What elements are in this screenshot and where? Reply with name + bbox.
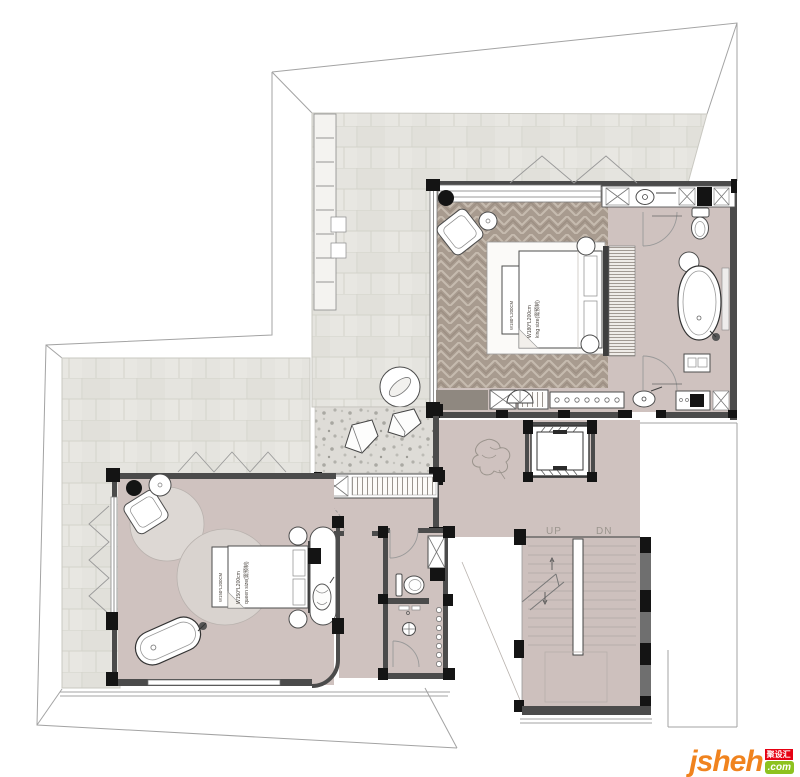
window-band-bottom (148, 680, 280, 685)
headboard-drape (609, 246, 635, 356)
wardrobe-x (606, 188, 629, 205)
staircase: UP DN (514, 526, 651, 715)
dresser (550, 392, 624, 408)
nightstand (577, 237, 595, 255)
vanity (308, 527, 336, 625)
wardrobe-strip (602, 186, 735, 207)
vanity-sink (313, 584, 331, 610)
stair-rail (573, 539, 583, 655)
window-band-left (111, 497, 117, 615)
master-suite: W180*L200CM W180*L200cm king size(需预制) (426, 156, 737, 420)
bed-bench-label: W150*L200CM (218, 572, 223, 602)
stairs-down-label: DN (596, 526, 612, 537)
bed-bench-label: W180*L200CM (509, 300, 514, 330)
nightstand (289, 527, 307, 545)
round-table (380, 367, 420, 407)
toilet (396, 574, 424, 596)
nightstand (581, 335, 599, 353)
gravel-garden (315, 407, 436, 473)
closet-x (428, 536, 445, 581)
king-bed: W180*L200CM W180*L200cm king size(需预制) (487, 237, 635, 356)
bed-size-label: W150*L200cm (236, 571, 242, 604)
toilet (692, 208, 710, 239)
closet-dark (697, 187, 712, 206)
nightstand (289, 610, 307, 628)
guest-bathroom (378, 526, 455, 680)
window-band-top (438, 185, 601, 202)
floor-drain (403, 623, 416, 636)
stairs-up-label: UP (546, 526, 562, 537)
round-column (126, 480, 142, 496)
logo-tld-badge: .com (765, 761, 794, 774)
bed-type-label: king size(需预制) (534, 300, 541, 338)
wardrobe-x (714, 188, 729, 205)
floor-plan-canvas: W180*L200CM W180*L200cm king size(需预制) (0, 0, 800, 777)
logo-brand-text: jsheh (689, 749, 762, 774)
round-column (438, 190, 454, 206)
bed-size-label: W180*L200cm (527, 305, 533, 338)
bed-type-label: queen size(需预制) (243, 561, 250, 604)
wardrobe-x (679, 188, 695, 205)
window-band-left (430, 189, 437, 410)
vanity-cabinet (676, 391, 710, 410)
elevator (523, 420, 597, 482)
cabinet-x (713, 391, 729, 410)
logo-cn-badge: 聚设汇 (765, 749, 793, 760)
headboard-wall (603, 246, 609, 356)
side-table (479, 212, 497, 230)
watermark-logo: jsheh 聚设汇 .com (689, 749, 794, 774)
side-table (149, 474, 171, 496)
low-cabinet (684, 354, 710, 372)
guest-suite: W150*L200CM W150*L200cm queen size(需预制) (89, 452, 344, 686)
